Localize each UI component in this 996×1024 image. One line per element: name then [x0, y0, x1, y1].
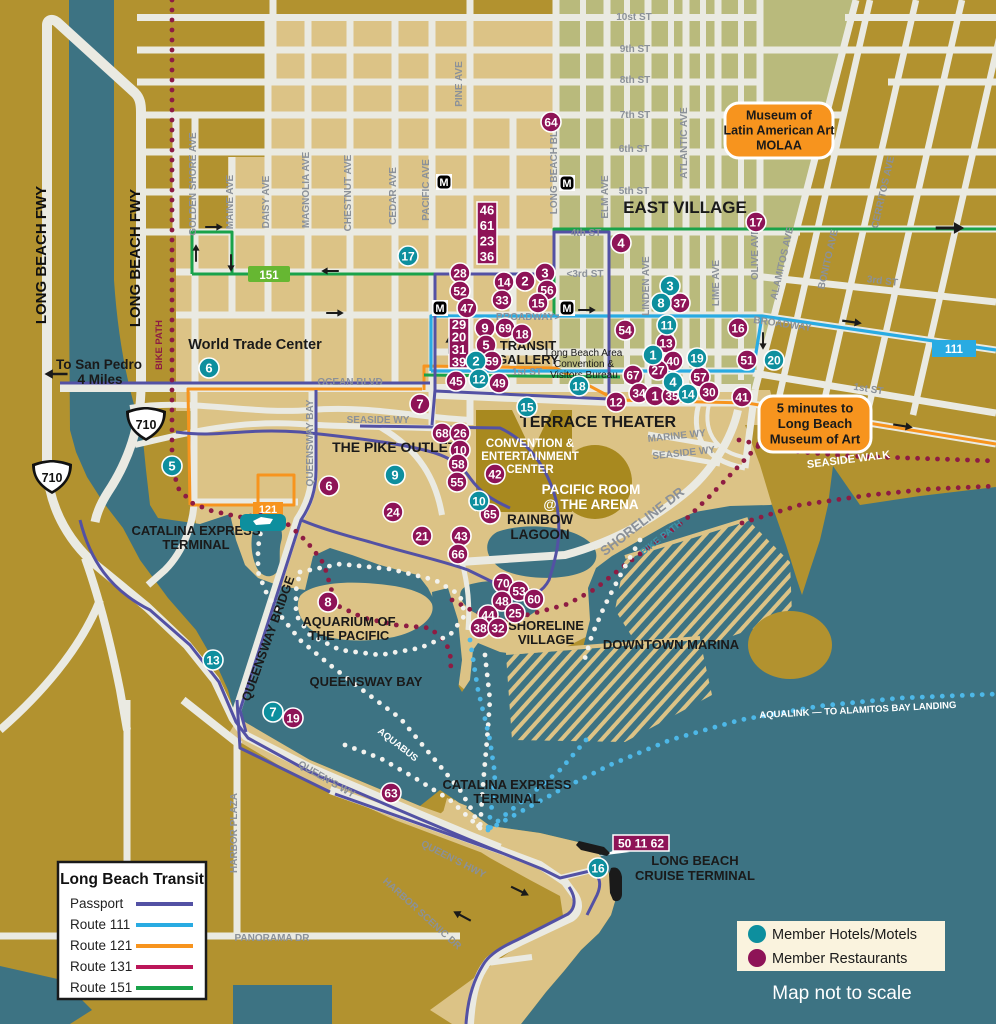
- svg-text:VILLAGE: VILLAGE: [518, 632, 575, 647]
- svg-text:LIME AVE: LIME AVE: [711, 260, 722, 306]
- svg-text:16: 16: [731, 322, 745, 336]
- svg-text:QUEENSWAY BAY: QUEENSWAY BAY: [310, 674, 423, 689]
- svg-text:Museum of Art: Museum of Art: [770, 432, 861, 447]
- svg-text:40: 40: [666, 355, 680, 369]
- svg-text:19: 19: [286, 712, 300, 726]
- svg-text:61: 61: [480, 218, 494, 233]
- svg-text:CATALINA EXPRESS: CATALINA EXPRESS: [442, 777, 571, 792]
- svg-text:@ THE ARENA: @ THE ARENA: [543, 497, 638, 512]
- svg-text:Latin American Art: Latin American Art: [724, 124, 836, 138]
- svg-text:21: 21: [415, 530, 429, 544]
- svg-text:1st ST: 1st ST: [512, 367, 542, 378]
- svg-text:THE PACIFIC: THE PACIFIC: [309, 628, 390, 643]
- svg-text:63: 63: [384, 787, 398, 801]
- svg-text:Route 151: Route 151: [70, 980, 132, 995]
- svg-text:50 11 62: 50 11 62: [618, 837, 664, 851]
- svg-text:MAGNOLIA AVE: MAGNOLIA AVE: [301, 152, 312, 229]
- svg-text:37: 37: [673, 297, 687, 311]
- svg-text:TERRACE THEATER: TERRACE THEATER: [520, 414, 677, 431]
- svg-text:68: 68: [435, 427, 449, 441]
- svg-text:OLIVE AVE: OLIVE AVE: [750, 228, 761, 281]
- svg-text:67: 67: [626, 369, 640, 383]
- svg-text:33: 33: [495, 294, 509, 308]
- svg-text:CENTER: CENTER: [506, 464, 554, 476]
- svg-text:8th ST: 8th ST: [620, 75, 651, 86]
- svg-text:3: 3: [541, 266, 548, 281]
- svg-text:SEASIDE WY: SEASIDE WY: [347, 415, 410, 426]
- svg-text:1: 1: [649, 348, 656, 363]
- svg-text:Route 111: Route 111: [70, 917, 130, 932]
- svg-text:151: 151: [259, 270, 279, 282]
- svg-text:Map not to scale: Map not to scale: [772, 983, 911, 1004]
- svg-text:45: 45: [449, 375, 463, 389]
- svg-text:59: 59: [485, 355, 499, 369]
- svg-text:ELM AVE: ELM AVE: [600, 175, 611, 219]
- svg-text:18: 18: [515, 328, 529, 342]
- svg-text:43: 43: [454, 530, 468, 544]
- svg-text:69: 69: [498, 322, 512, 336]
- svg-text:Route 131: Route 131: [70, 959, 132, 974]
- svg-text:4th ST: 4th ST: [571, 228, 602, 239]
- svg-text:8: 8: [657, 296, 664, 311]
- svg-text:M: M: [435, 303, 444, 315]
- svg-text:38: 38: [473, 622, 487, 636]
- svg-text:36: 36: [480, 249, 494, 264]
- svg-text:15: 15: [520, 401, 534, 415]
- svg-text:PACIFIC AVE: PACIFIC AVE: [421, 159, 432, 221]
- svg-text:Long Beach Transit: Long Beach Transit: [60, 871, 204, 888]
- svg-text:5: 5: [168, 459, 175, 474]
- svg-text:47: 47: [460, 302, 474, 316]
- svg-text:DAISY AVE: DAISY AVE: [261, 175, 272, 228]
- svg-text:To San Pedro: To San Pedro: [56, 357, 142, 372]
- svg-text:7: 7: [416, 397, 423, 412]
- svg-text:PACIFIC ROOM: PACIFIC ROOM: [542, 482, 641, 497]
- svg-text:DOWNTOWN MARINA: DOWNTOWN MARINA: [603, 637, 740, 652]
- svg-text:10st ST: 10st ST: [616, 12, 652, 23]
- svg-text:CRUISE TERMINAL: CRUISE TERMINAL: [635, 868, 755, 883]
- svg-text:ENTERTAINMENT: ENTERTAINMENT: [481, 451, 579, 463]
- svg-text:AQUARIUM OF: AQUARIUM OF: [302, 614, 395, 629]
- svg-text:24: 24: [386, 506, 400, 520]
- svg-text:OCEAN BLVD: OCEAN BLVD: [317, 377, 382, 388]
- svg-text:4 Miles: 4 Miles: [77, 372, 122, 387]
- svg-text:2: 2: [472, 354, 479, 369]
- svg-text:9: 9: [481, 321, 488, 336]
- svg-text:4: 4: [617, 236, 625, 251]
- svg-text:7th ST: 7th ST: [620, 110, 651, 121]
- svg-text:M: M: [562, 303, 571, 315]
- svg-text:16: 16: [591, 862, 605, 876]
- svg-text:58: 58: [451, 458, 465, 472]
- svg-text:PANORAMA DR: PANORAMA DR: [235, 933, 311, 944]
- svg-text:4: 4: [669, 375, 677, 390]
- svg-text:Convention &: Convention &: [554, 359, 614, 370]
- svg-text:LONG BEACH FWY: LONG BEACH FWY: [33, 186, 50, 324]
- svg-text:34: 34: [632, 387, 646, 401]
- svg-text:12: 12: [472, 373, 486, 387]
- svg-text:14: 14: [497, 276, 511, 290]
- svg-text:41: 41: [735, 391, 749, 405]
- svg-text:6: 6: [205, 361, 212, 376]
- svg-text:52: 52: [453, 285, 467, 299]
- svg-text:QUEENSWAY BAY: QUEENSWAY BAY: [305, 399, 316, 486]
- svg-text:BIKE PATH: BIKE PATH: [154, 320, 165, 370]
- svg-text:3: 3: [666, 279, 673, 294]
- svg-text:32: 32: [491, 622, 505, 636]
- svg-text:Member Hotels/Motels: Member Hotels/Motels: [772, 927, 917, 943]
- svg-text:5th ST: 5th ST: [619, 186, 650, 197]
- svg-text:111: 111: [945, 344, 964, 356]
- svg-text:55: 55: [450, 476, 464, 490]
- svg-text:Long Beach Area: Long Beach Area: [546, 348, 623, 359]
- svg-text:GOLDEN SHORE AVE: GOLDEN SHORE AVE: [188, 132, 199, 236]
- svg-text:Route 121: Route 121: [70, 938, 132, 953]
- svg-text:ATLANTIC AVE: ATLANTIC AVE: [679, 107, 690, 179]
- svg-text:6: 6: [325, 479, 332, 494]
- svg-text:12: 12: [609, 396, 623, 410]
- svg-text:19: 19: [690, 352, 704, 366]
- svg-text:6th ST: 6th ST: [619, 144, 650, 155]
- svg-text:39: 39: [452, 354, 466, 369]
- svg-text:CONVENTION &: CONVENTION &: [486, 438, 574, 450]
- svg-text:M: M: [562, 178, 571, 190]
- svg-text:RAINBOW: RAINBOW: [507, 512, 573, 527]
- svg-text:LAGOON: LAGOON: [510, 527, 569, 542]
- svg-text:49: 49: [492, 377, 506, 391]
- svg-text:66: 66: [451, 548, 465, 562]
- svg-text:TERMINAL: TERMINAL: [473, 791, 540, 806]
- svg-text:5: 5: [482, 338, 489, 353]
- svg-text:CEDAR AVE: CEDAR AVE: [388, 167, 399, 225]
- svg-text:60: 60: [527, 593, 541, 607]
- svg-text:Member Restaurants: Member Restaurants: [772, 951, 907, 967]
- svg-text:18: 18: [572, 380, 586, 394]
- svg-text:World Trade Center: World Trade Center: [188, 337, 322, 353]
- svg-text:30: 30: [702, 386, 716, 400]
- svg-text:20: 20: [767, 354, 781, 368]
- svg-text:LONG BEACH FWY: LONG BEACH FWY: [127, 189, 144, 327]
- svg-text:42: 42: [488, 468, 502, 482]
- svg-text:17: 17: [401, 250, 415, 264]
- svg-text:LONG BEACH: LONG BEACH: [651, 853, 738, 868]
- svg-text:MAINE AVE: MAINE AVE: [225, 174, 236, 229]
- svg-text:Passport: Passport: [70, 896, 124, 911]
- svg-text:17: 17: [749, 216, 763, 230]
- svg-text:Museum of: Museum of: [746, 109, 813, 123]
- svg-text:<3rd ST: <3rd ST: [567, 269, 604, 280]
- svg-text:28: 28: [453, 267, 467, 281]
- svg-text:MOLAA: MOLAA: [756, 139, 802, 153]
- svg-text:70: 70: [496, 577, 510, 591]
- svg-text:13: 13: [206, 654, 220, 668]
- svg-text:LINDEN AVE: LINDEN AVE: [641, 256, 652, 316]
- svg-text:26: 26: [453, 427, 467, 441]
- svg-text:15: 15: [531, 297, 545, 311]
- svg-text:710: 710: [136, 418, 157, 432]
- svg-text:HARBOR PLAZA: HARBOR PLAZA: [229, 793, 240, 873]
- svg-text:1: 1: [651, 389, 658, 404]
- svg-text:TERMINAL: TERMINAL: [162, 537, 229, 552]
- svg-text:M: M: [439, 177, 448, 189]
- svg-text:8: 8: [324, 595, 331, 610]
- svg-text:54: 54: [618, 324, 632, 338]
- svg-text:14: 14: [681, 388, 695, 402]
- svg-text:EAST VILLAGE: EAST VILLAGE: [623, 198, 747, 217]
- svg-text:5 minutes to: 5 minutes to: [777, 400, 854, 415]
- svg-text:23: 23: [480, 233, 494, 248]
- svg-text:10: 10: [472, 495, 486, 509]
- svg-text:46: 46: [480, 202, 494, 217]
- svg-text:11: 11: [661, 319, 674, 333]
- svg-text:51: 51: [740, 354, 754, 368]
- svg-text:Long Beach: Long Beach: [778, 416, 852, 431]
- svg-text:2: 2: [521, 274, 528, 289]
- svg-text:7: 7: [269, 705, 276, 720]
- svg-text:64: 64: [544, 116, 558, 130]
- svg-text:9: 9: [391, 468, 398, 483]
- svg-text:CHESTNUT AVE: CHESTNUT AVE: [343, 154, 354, 231]
- svg-text:710: 710: [42, 471, 63, 485]
- svg-text:9th ST: 9th ST: [620, 44, 651, 55]
- svg-text:PINE AVE: PINE AVE: [454, 61, 465, 107]
- svg-text:25: 25: [508, 607, 522, 621]
